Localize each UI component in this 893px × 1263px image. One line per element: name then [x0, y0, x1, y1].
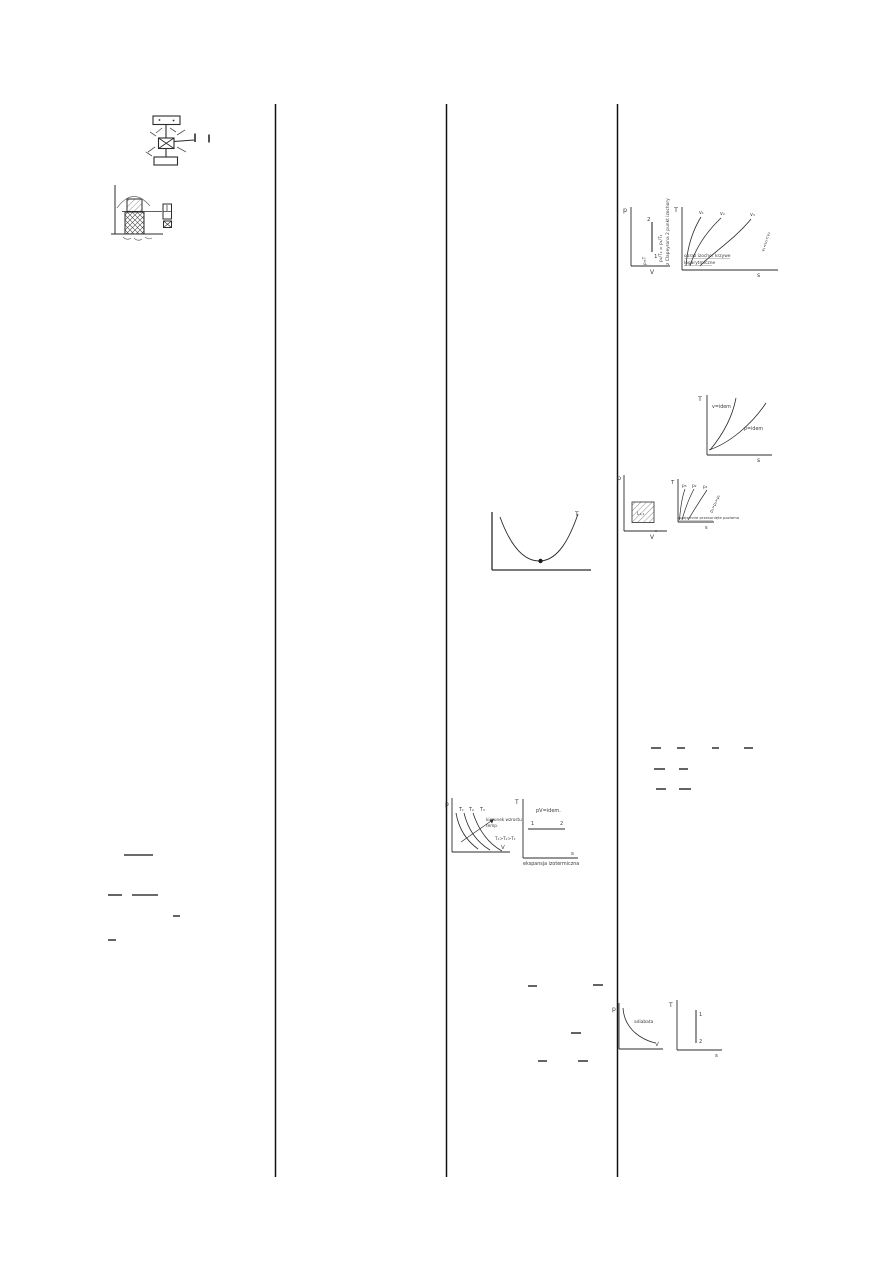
apparatus-schematic	[146, 116, 209, 165]
adiabat-label: adiabata	[634, 1019, 654, 1025]
isotherm-order-note: T₃>T₂>T₁	[494, 836, 516, 842]
state-label-2: 2	[647, 217, 651, 223]
axis-label-s: s	[715, 1053, 718, 1059]
axis-label-p: p	[612, 1006, 616, 1013]
point-label-1: 1	[699, 1012, 702, 1018]
axis-label-s: s	[757, 272, 760, 279]
isobar-order-note: p₃>p₂>p₁	[708, 494, 721, 514]
piston-diagram	[111, 185, 172, 240]
curve-label-v2: v₂	[720, 212, 725, 217]
axis-label-t: T	[514, 799, 519, 806]
chart-u-curve: T	[492, 511, 591, 570]
chart-isochores-ts: T s v₁ v₂ v₃ v₁<v₂<v₃ obraz izochor krzy…	[673, 206, 778, 279]
point-label-2: 2	[699, 1039, 702, 1045]
axis-label-v: V	[650, 269, 655, 276]
isotherm-title: pV=idem.	[536, 808, 561, 814]
chart-isotherm-ts: T s pV=idem. 1 2 ekspansja izotermiczna	[514, 799, 579, 867]
isochore-order-note: v₁<v₂<v₃	[760, 231, 772, 253]
axis-label-t: T	[673, 206, 678, 214]
isochore-note: z Clapeyrona 2 punkt izochory	[665, 198, 671, 265]
axis-label-s: s	[571, 851, 574, 857]
isobar-caption: wzajemnie przesunięte poziomo	[678, 515, 740, 520]
isotherm-caption: ekspansja izotermiczna	[523, 861, 579, 867]
chart-isochore-vs-isobar-ts: T s v=idem p=idem	[697, 395, 772, 464]
curve-label-v1: v₁	[699, 211, 704, 216]
u-curve-minimum-point	[538, 559, 542, 563]
apparatus-bottom-box	[154, 157, 178, 165]
axis-label-t: T	[670, 480, 675, 486]
isochore-relation: p∝T	[642, 256, 647, 265]
axis-label-s: s	[757, 457, 760, 464]
piston-column-hatched	[125, 212, 144, 234]
chart-isobars-ts: T s p₃ p₂ p₁ p₃>p₂>p₁ wzajemnie przesuni…	[670, 479, 740, 531]
fraction-bars-right	[651, 748, 753, 789]
isochore-equation: p₂/T₂ = p₁/T₁	[658, 234, 664, 262]
axis-label-t: T	[697, 395, 702, 403]
piston-cap-hatched	[127, 199, 142, 212]
axis-label-p: p	[445, 801, 449, 808]
point-label-2: 2	[560, 821, 563, 827]
temp-growth-note-1: kierunek wzrostu	[486, 817, 522, 822]
curve-label-t2: T₂	[468, 807, 474, 813]
axis-label-p: p	[623, 206, 627, 214]
curve-label-v3: v₃	[750, 213, 755, 218]
chart-work-pv: p V L₁,₂	[617, 474, 667, 541]
fraction-bars-middle	[528, 985, 603, 1061]
axis-label-t: T	[668, 1002, 673, 1009]
state-label-1: 1	[654, 254, 658, 260]
u-curve-end-label: T	[574, 511, 579, 518]
axis-label-v: V	[650, 534, 655, 541]
chart-adiabat-pv: p V adiabata	[612, 1003, 663, 1049]
apparatus-top-box	[153, 116, 180, 125]
curve-label-t3: T₃	[479, 807, 485, 813]
scanned-notes-page: p V 2 1 z Clapeyrona 2 punkt izochory p₂…	[0, 0, 893, 1263]
chart-isochore-pv: p V 2 1 z Clapeyrona 2 punkt izochory p₂…	[623, 198, 671, 276]
work-area-label: L₁,₂	[637, 511, 645, 517]
label-v-idem: v=idem	[712, 404, 731, 410]
adiabat-curve	[623, 1008, 655, 1043]
chart-adiabat-ts: T s 1 2	[668, 1000, 722, 1059]
curve-label-p2: p₂	[692, 484, 697, 489]
isochore-caption-2: logarytmiczne	[684, 260, 716, 266]
point-label-1: 1	[531, 821, 534, 827]
chart-isotherms-pv: p V T₁ T₂ T₃ kierunek wzrostu temp. T₃>T…	[445, 798, 522, 852]
label-p-idem: p=idem	[744, 426, 763, 432]
u-curve-path	[500, 514, 578, 561]
axis-label-v: V	[501, 845, 505, 851]
page-canvas: p V 2 1 z Clapeyrona 2 punkt izochory p₂…	[0, 0, 893, 1263]
curve-label-p3: p₃	[682, 484, 687, 489]
axis-label-s: s	[705, 525, 708, 531]
curve-label-p1: p₁	[703, 485, 708, 490]
axis-label-p: p	[617, 474, 621, 482]
axis-label-v: V	[655, 1042, 659, 1048]
isochore-caption-1: obraz izochor krzywe	[684, 253, 731, 259]
fraction-bars-left	[108, 855, 180, 940]
temp-growth-note-2: temp.	[486, 823, 498, 828]
curve-label-t1: T₁	[458, 807, 464, 813]
